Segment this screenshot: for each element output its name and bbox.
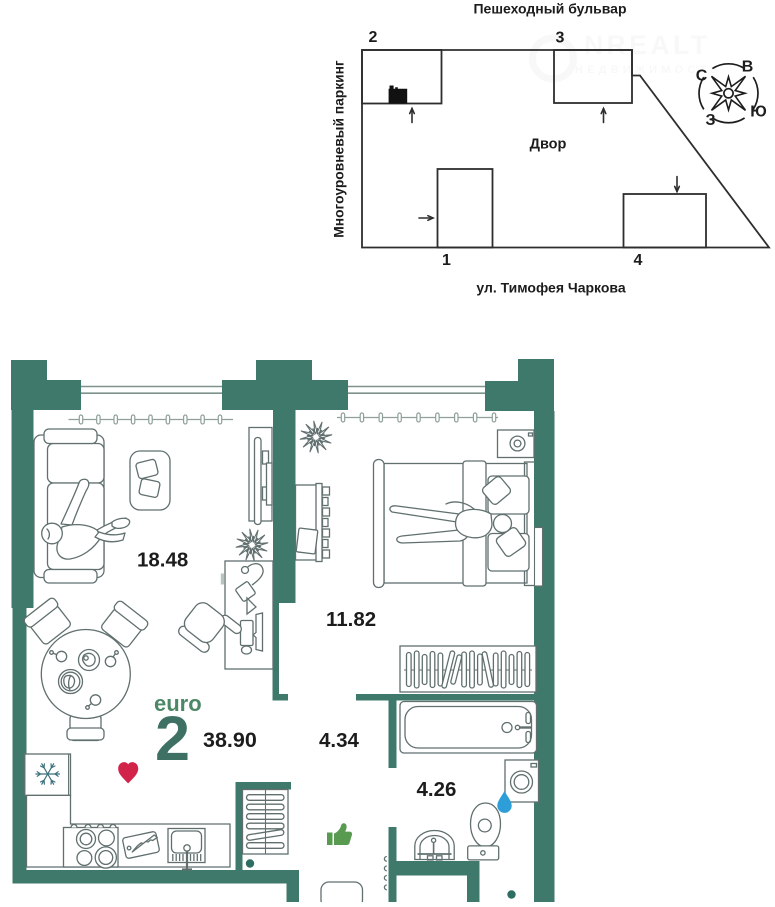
svg-text:Двор: Двор [530, 137, 567, 153]
svg-text:Ю: Ю [750, 104, 767, 121]
svg-text:С: С [696, 68, 708, 85]
svg-text:В: В [742, 59, 754, 76]
svg-text:NREALT: NREALT [584, 30, 711, 60]
svg-text:1: 1 [442, 252, 451, 269]
svg-text:4.34: 4.34 [319, 729, 359, 752]
svg-text:4: 4 [634, 252, 643, 269]
svg-text:2: 2 [155, 704, 190, 774]
svg-text:11.82: 11.82 [326, 608, 376, 631]
svg-text:З: З [705, 112, 715, 129]
svg-text:Пешеходный бульвар: Пешеходный бульвар [473, 1, 626, 17]
svg-text:ул. Тимофея Чаркова: ул. Тимофея Чаркова [476, 280, 626, 296]
svg-text:3: 3 [556, 30, 565, 47]
svg-text:18.48: 18.48 [137, 549, 188, 572]
svg-text:38.90: 38.90 [203, 728, 257, 752]
svg-text:Многоуровневый паркинг: Многоуровневый паркинг [332, 60, 347, 238]
svg-text:2: 2 [369, 29, 378, 46]
svg-text:4.26: 4.26 [417, 778, 457, 801]
